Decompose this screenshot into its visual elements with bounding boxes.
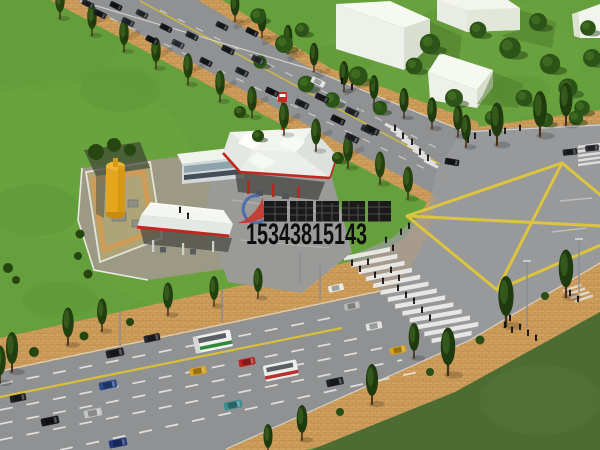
svg-text:15343815143: 15343815143 — [246, 218, 367, 251]
